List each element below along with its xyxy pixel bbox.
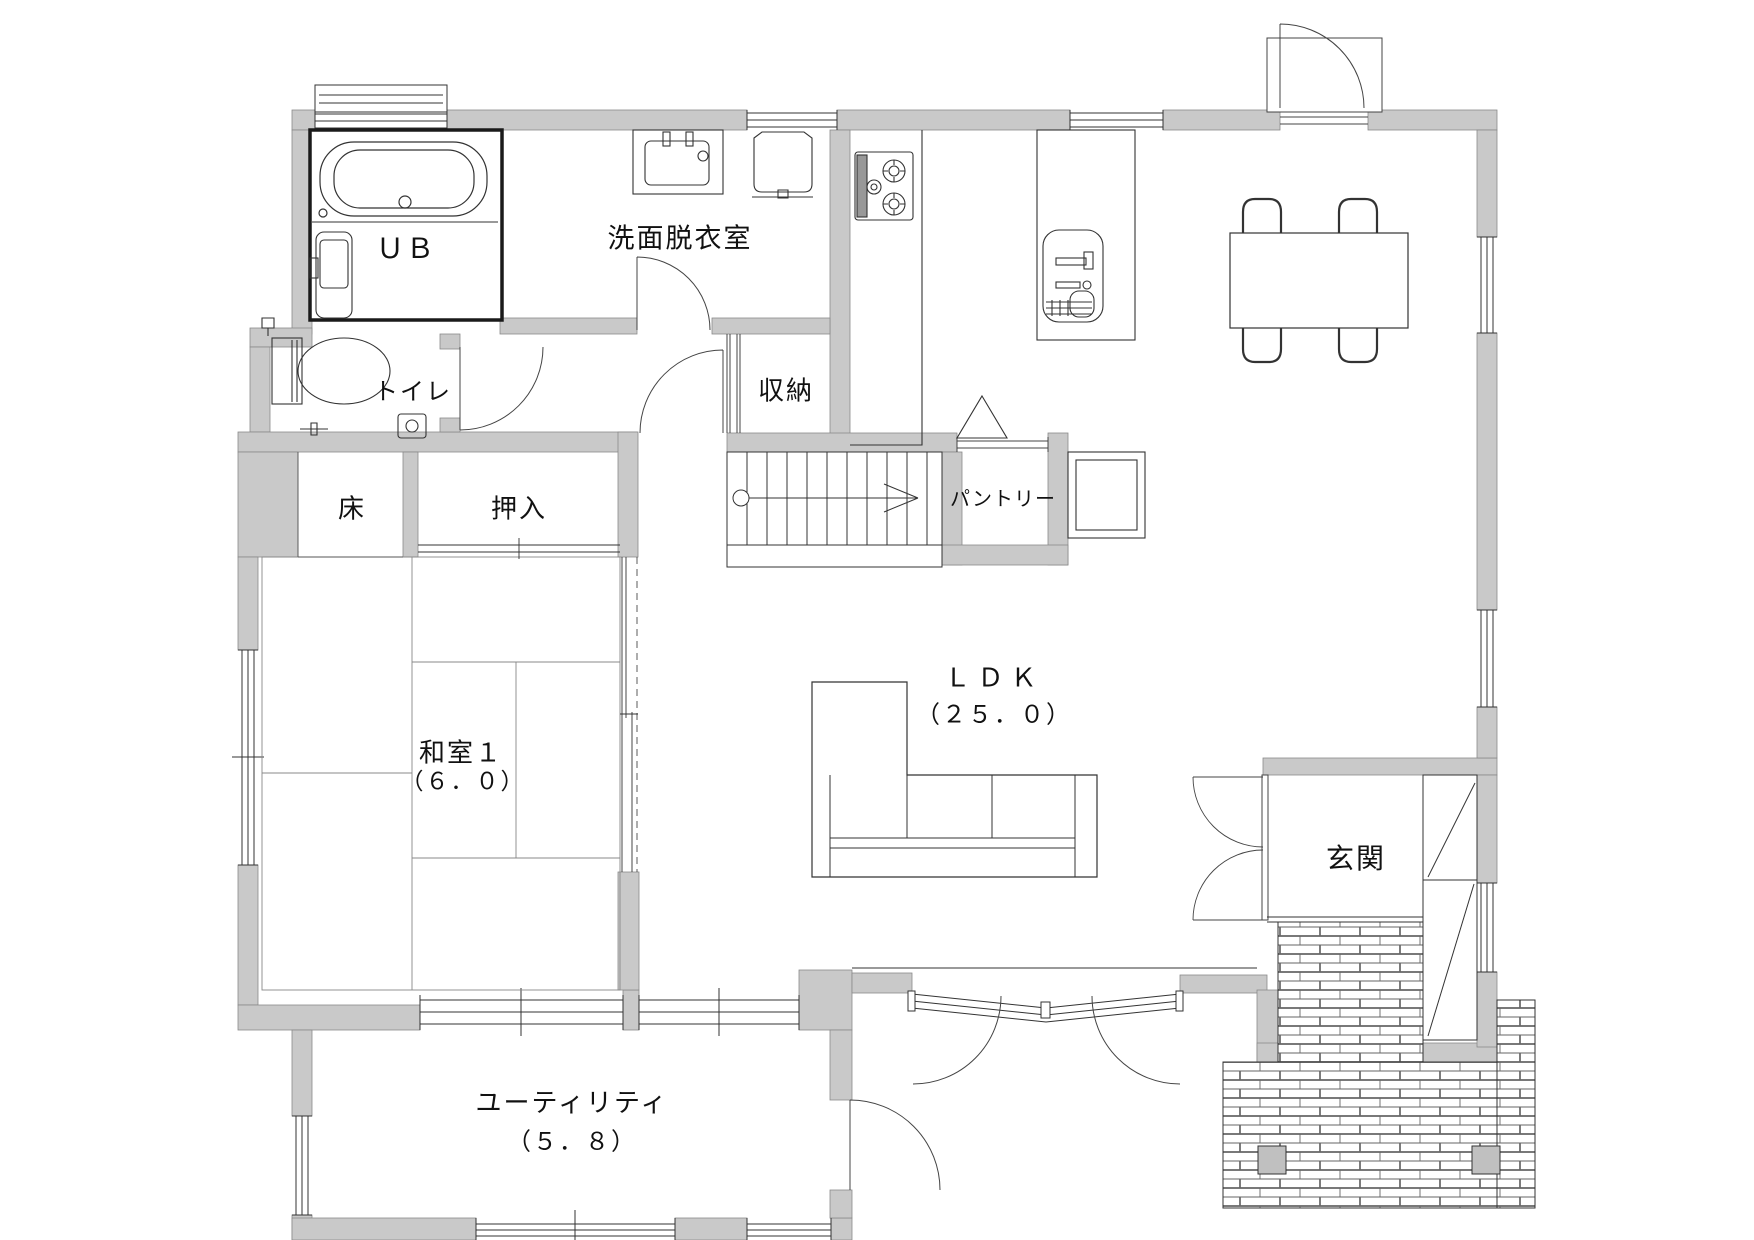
floor-plan: ＵＢ 洗面脱衣室 トイレ 収納 床 押入 パントリー 和室１ （６．０） ＬＤＫ… (0, 0, 1754, 1240)
kitchen (850, 130, 1145, 538)
room-label-ldk: ＬＤＫ (944, 658, 1043, 695)
refrigerator-icon (1068, 452, 1145, 538)
chair-icon (1339, 328, 1377, 362)
stairs-direction-arrow (733, 484, 918, 512)
room-area-utility: （５．８） (507, 1122, 637, 1157)
back-door-icon (1267, 24, 1382, 124)
room-label-entrance: 玄関 (1326, 837, 1386, 877)
utility-door-icon (850, 1100, 940, 1190)
room-label-storage: 収納 (758, 371, 814, 408)
washroom-door-icon (637, 257, 710, 330)
floor-plan-drawing (0, 0, 1754, 1240)
porch-post-icon (1258, 1146, 1286, 1174)
room-label-pantry: パントリー (950, 483, 1056, 512)
fusuma-divider-icon (620, 557, 638, 872)
window-icon (476, 1210, 675, 1240)
window-icon (232, 650, 264, 865)
window-icon (747, 1218, 831, 1240)
window-icon (1477, 237, 1497, 333)
room-label-tokonoma: 床 (338, 489, 366, 526)
dining-table-icon (1230, 233, 1408, 328)
storage-door-icon (727, 334, 740, 433)
room-label-unit-bath: ＵＢ (376, 227, 436, 267)
closet-sliding-door-icon (418, 538, 620, 559)
chair-icon (1339, 199, 1377, 233)
room-area-ldk: （２５．０） (916, 695, 1072, 730)
washroom-fixtures (633, 130, 813, 198)
washing-machine-icon (752, 132, 813, 198)
chair-icon (1243, 328, 1281, 362)
chair-icon (1243, 199, 1281, 233)
kitchen-sink-icon (1043, 230, 1103, 322)
stairs-icon (727, 452, 942, 567)
window-icon (747, 110, 837, 130)
japanese-room (262, 452, 638, 990)
pantry-door-icon (957, 437, 1048, 452)
unit-bath-frame (310, 130, 502, 320)
unit-bath (310, 130, 502, 320)
window-icon (1477, 610, 1497, 707)
window-icon (1477, 883, 1497, 972)
triangle-marker-icon (957, 396, 1007, 438)
sliding-window-icon (639, 988, 799, 1036)
room-label-closet: 押入 (491, 489, 547, 526)
room-label-washroom: 洗面脱衣室 (608, 217, 753, 256)
vanity-sink-icon (633, 130, 723, 194)
hall-door-icon (640, 350, 723, 433)
stove-icon (855, 152, 913, 220)
toilet-door-icon (460, 347, 543, 430)
sliding-window-icon (420, 988, 623, 1036)
shoe-cabinet-icon (1423, 775, 1477, 1040)
window-icon (292, 1116, 312, 1215)
room-label-toilet: トイレ (374, 372, 452, 407)
porch-brick-area (1223, 922, 1535, 1208)
room-area-japanese-room: （６．０） (401, 762, 526, 796)
room-label-utility: ユーティリティ (476, 1083, 669, 1120)
entrance-double-door-icon (1193, 775, 1268, 920)
window-icon (1070, 110, 1163, 130)
bay-bath-window-icon (315, 85, 447, 130)
porch-post-icon (1472, 1146, 1500, 1174)
entrance-step-line (1267, 917, 1423, 922)
